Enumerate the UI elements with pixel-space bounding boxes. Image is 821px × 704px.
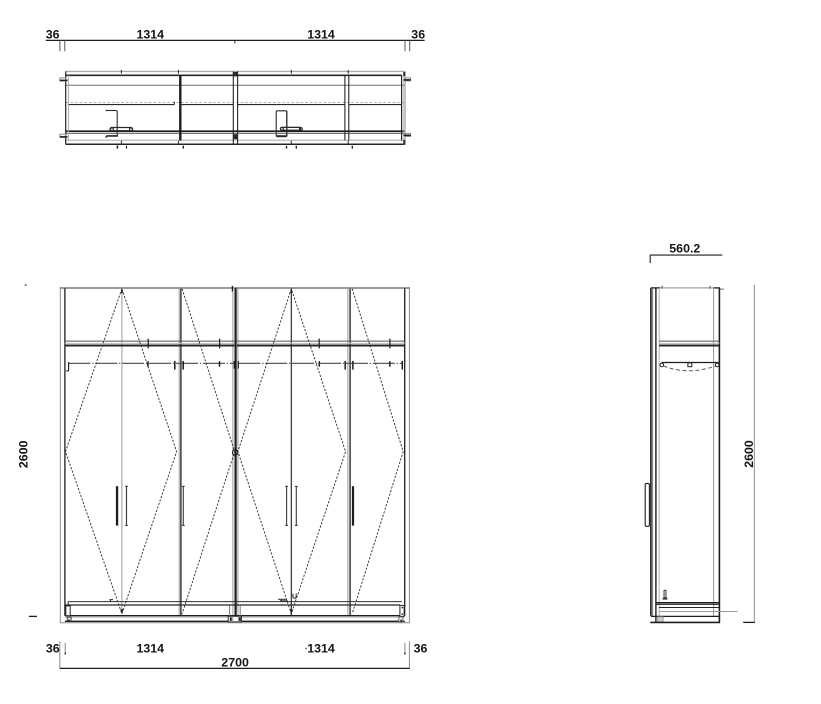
svg-text:1314: 1314 <box>137 27 165 41</box>
svg-text:36: 36 <box>411 27 425 41</box>
svg-text:1314: 1314 <box>137 642 165 656</box>
svg-text:36: 36 <box>414 642 428 656</box>
svg-text:2600: 2600 <box>742 440 756 468</box>
svg-text:1314: 1314 <box>307 27 335 41</box>
svg-text:36: 36 <box>46 27 60 41</box>
svg-text:2600: 2600 <box>16 440 30 468</box>
svg-text:1314: 1314 <box>307 642 335 656</box>
svg-text:36: 36 <box>46 642 60 656</box>
svg-text:560.2: 560.2 <box>669 242 700 256</box>
svg-text:2700: 2700 <box>221 656 249 670</box>
